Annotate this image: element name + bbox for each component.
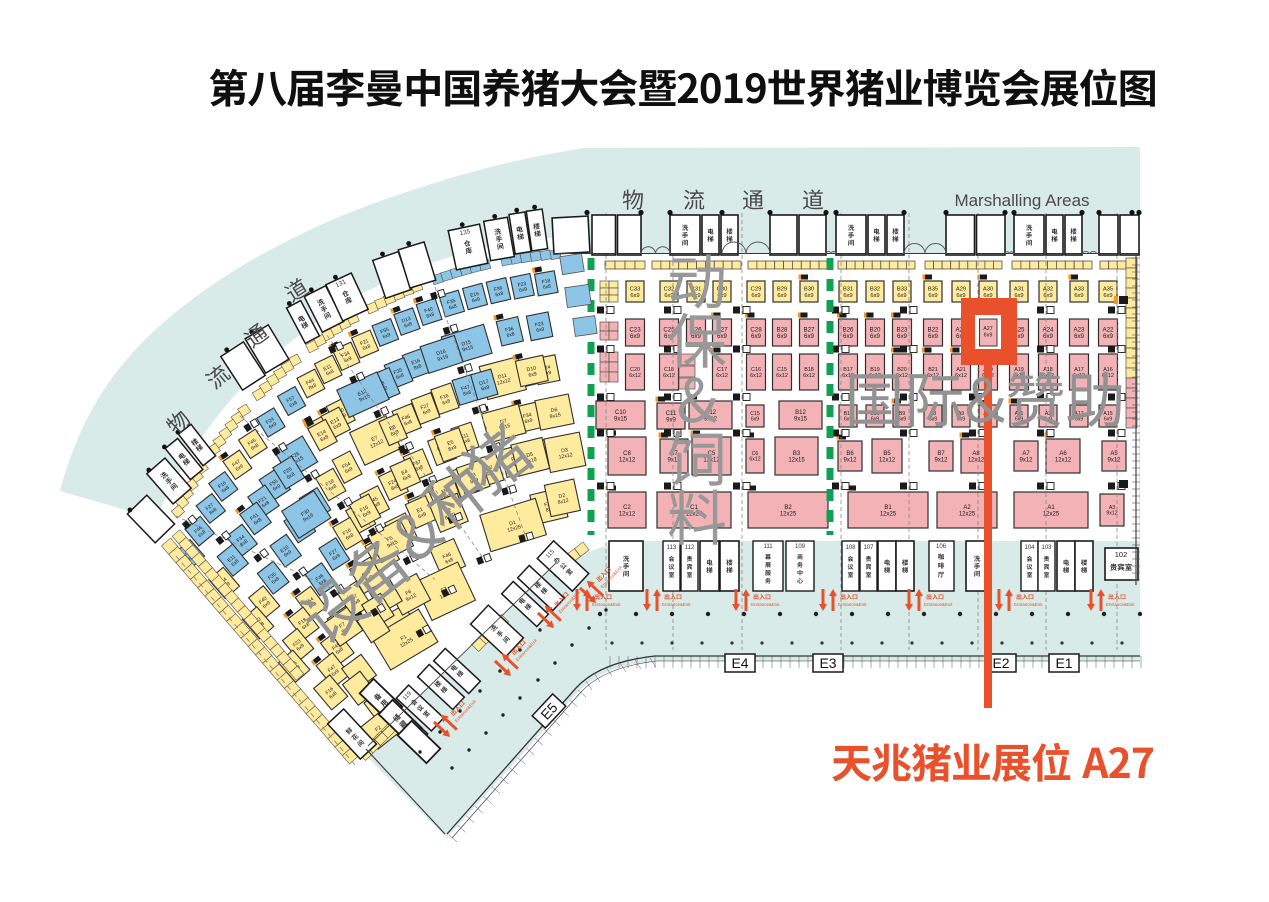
svg-text:12x25: 12x25 bbox=[1043, 512, 1060, 518]
svg-text:6x9: 6x9 bbox=[928, 293, 937, 299]
svg-text:6x9: 6x9 bbox=[1074, 333, 1085, 340]
svg-text:12x12: 12x12 bbox=[1055, 458, 1072, 464]
svg-text:6x9: 6x9 bbox=[1043, 293, 1052, 299]
svg-text:111: 111 bbox=[763, 544, 773, 550]
svg-text:B6: B6 bbox=[846, 451, 854, 457]
svg-text:102: 102 bbox=[1115, 550, 1128, 559]
svg-text:C2: C2 bbox=[623, 505, 631, 511]
svg-text:E2: E2 bbox=[992, 655, 1009, 671]
svg-text:A27: A27 bbox=[983, 326, 993, 332]
svg-text:Entrance&Exit: Entrance&Exit bbox=[838, 602, 867, 607]
svg-text:B33: B33 bbox=[897, 287, 907, 293]
svg-text:E1: E1 bbox=[1055, 655, 1072, 671]
svg-text:108: 108 bbox=[845, 545, 856, 551]
svg-text:12x25: 12x25 bbox=[880, 512, 897, 518]
svg-text:B1: B1 bbox=[884, 505, 892, 511]
svg-text:6x9: 6x9 bbox=[751, 293, 760, 299]
svg-text:A8: A8 bbox=[972, 451, 980, 457]
svg-text:6x9: 6x9 bbox=[928, 333, 939, 340]
svg-text:E4: E4 bbox=[731, 655, 748, 671]
svg-text:6x9: 6x9 bbox=[843, 293, 852, 299]
svg-text:9x15: 9x15 bbox=[794, 417, 808, 423]
svg-text:6x9: 6x9 bbox=[804, 293, 813, 299]
svg-text:6x12: 6x12 bbox=[776, 373, 788, 379]
svg-text:6x9: 6x9 bbox=[777, 333, 788, 340]
svg-text:6x9: 6x9 bbox=[897, 333, 908, 340]
svg-text:B12: B12 bbox=[795, 410, 806, 416]
svg-text:E3: E3 bbox=[819, 655, 836, 671]
svg-text:12x12: 12x12 bbox=[968, 458, 985, 464]
svg-text:C8: C8 bbox=[623, 451, 631, 457]
svg-text:B7: B7 bbox=[937, 451, 945, 457]
svg-text:6x9: 6x9 bbox=[983, 293, 992, 299]
svg-text:A7: A7 bbox=[1022, 451, 1030, 457]
svg-text:106: 106 bbox=[936, 544, 947, 550]
svg-text:6x12: 6x12 bbox=[750, 373, 762, 379]
svg-text:B32: B32 bbox=[870, 287, 880, 293]
svg-text:B35: B35 bbox=[928, 287, 938, 293]
svg-text:B3: B3 bbox=[793, 451, 801, 457]
svg-text:12x15: 12x15 bbox=[788, 458, 805, 464]
svg-text:C11: C11 bbox=[666, 411, 677, 417]
svg-text:6x12: 6x12 bbox=[629, 373, 641, 379]
svg-text:9x12: 9x12 bbox=[934, 458, 948, 464]
svg-text:103: 103 bbox=[1041, 545, 1052, 551]
svg-text:Marshalling Areas: Marshalling Areas bbox=[954, 191, 1089, 210]
svg-text:12x25: 12x25 bbox=[780, 512, 797, 518]
svg-text:B29: B29 bbox=[777, 287, 787, 293]
svg-text:9x15: 9x15 bbox=[614, 417, 628, 423]
svg-text:B2: B2 bbox=[784, 505, 792, 511]
svg-text:12x12: 12x12 bbox=[879, 458, 896, 464]
svg-text:104: 104 bbox=[1024, 545, 1035, 551]
svg-text:C10: C10 bbox=[615, 410, 627, 416]
svg-text:Entrance&Exit: Entrance&Exit bbox=[1106, 602, 1135, 607]
svg-text:Entrance&Exit: Entrance&Exit bbox=[751, 602, 780, 607]
svg-text:C33: C33 bbox=[630, 287, 641, 293]
svg-text:6x9: 6x9 bbox=[1014, 293, 1023, 299]
svg-text:6x9: 6x9 bbox=[630, 293, 639, 299]
svg-text:6x9: 6x9 bbox=[751, 417, 759, 423]
svg-text:6x9: 6x9 bbox=[804, 333, 815, 340]
svg-text:112: 112 bbox=[685, 545, 695, 551]
svg-text:A2: A2 bbox=[963, 505, 971, 511]
svg-text:6x9: 6x9 bbox=[984, 333, 993, 339]
svg-text:12x12: 12x12 bbox=[619, 458, 636, 464]
svg-text:6x9: 6x9 bbox=[751, 333, 762, 340]
svg-text:6x12: 6x12 bbox=[803, 373, 815, 379]
svg-text:109: 109 bbox=[795, 544, 806, 550]
svg-text:12x12: 12x12 bbox=[619, 512, 636, 518]
svg-text:Entrance&Exit: Entrance&Exit bbox=[592, 602, 621, 607]
svg-text:107: 107 bbox=[863, 545, 874, 551]
svg-text:C29: C29 bbox=[751, 287, 762, 293]
svg-text:9x12: 9x12 bbox=[1107, 458, 1121, 464]
svg-text:6x9: 6x9 bbox=[870, 333, 881, 340]
svg-text:A1: A1 bbox=[1047, 505, 1055, 511]
svg-text:A33: A33 bbox=[1074, 287, 1084, 293]
svg-text:A35: A35 bbox=[1103, 287, 1113, 293]
svg-text:9x12: 9x12 bbox=[1019, 458, 1033, 464]
svg-text:A31: A31 bbox=[1014, 287, 1024, 293]
svg-text:113: 113 bbox=[667, 545, 677, 551]
svg-text:6x12: 6x12 bbox=[749, 457, 760, 463]
svg-text:Entrance&Exit: Entrance&Exit bbox=[924, 602, 953, 607]
svg-text:6x12: 6x12 bbox=[716, 373, 728, 379]
svg-text:Entrance&Exit: Entrance&Exit bbox=[662, 602, 691, 607]
svg-text:6x9: 6x9 bbox=[1104, 417, 1112, 423]
svg-text:B5: B5 bbox=[883, 451, 891, 457]
svg-text:A32: A32 bbox=[1043, 287, 1053, 293]
svg-text:A29: A29 bbox=[956, 287, 966, 293]
svg-text:6x9: 6x9 bbox=[1043, 333, 1054, 340]
svg-text:6x9: 6x9 bbox=[630, 333, 641, 340]
svg-text:9x12: 9x12 bbox=[843, 458, 857, 464]
svg-text:6x9: 6x9 bbox=[1103, 293, 1112, 299]
svg-text:6x9: 6x9 bbox=[956, 293, 965, 299]
svg-text:A6: A6 bbox=[1059, 451, 1067, 457]
svg-text:12x12: 12x12 bbox=[703, 458, 720, 464]
svg-text:6x9: 6x9 bbox=[870, 293, 879, 299]
svg-text:B31: B31 bbox=[843, 287, 853, 293]
svg-text:6x9: 6x9 bbox=[897, 293, 906, 299]
svg-text:12x25: 12x25 bbox=[959, 512, 976, 518]
svg-text:6x9: 6x9 bbox=[1103, 333, 1114, 340]
svg-text:6x9: 6x9 bbox=[843, 333, 854, 340]
svg-text:B30: B30 bbox=[804, 287, 814, 293]
svg-text:6x9: 6x9 bbox=[777, 293, 786, 299]
svg-text:Entrance&Exit: Entrance&Exit bbox=[1014, 602, 1043, 607]
svg-text:9x12: 9x12 bbox=[1106, 511, 1117, 517]
svg-text:A30: A30 bbox=[983, 287, 993, 293]
svg-text:6x9: 6x9 bbox=[1074, 293, 1083, 299]
svg-text:9x9: 9x9 bbox=[666, 418, 676, 424]
